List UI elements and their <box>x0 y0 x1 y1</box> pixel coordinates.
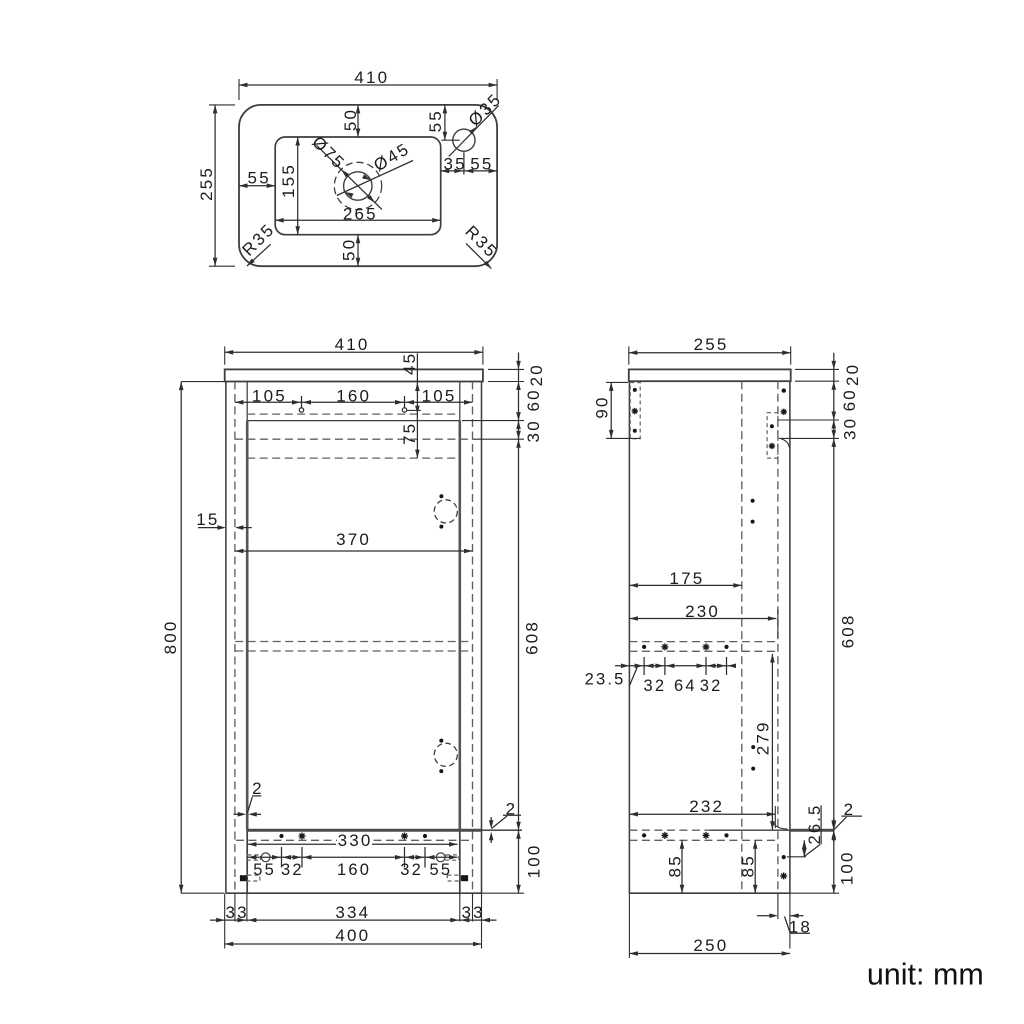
svg-text:410: 410 <box>354 68 389 87</box>
svg-text:279: 279 <box>754 720 773 755</box>
svg-text:60: 60 <box>524 388 543 411</box>
svg-text:55: 55 <box>426 109 445 132</box>
svg-text:unit: mm: unit: mm <box>867 958 984 992</box>
svg-text:160: 160 <box>336 386 371 405</box>
svg-text:105: 105 <box>252 386 287 405</box>
svg-text:23.5: 23.5 <box>585 671 626 689</box>
svg-text:32: 32 <box>281 861 304 879</box>
svg-text:155: 155 <box>279 163 298 198</box>
svg-text:30: 30 <box>840 417 859 440</box>
svg-text:55: 55 <box>253 861 276 879</box>
svg-text:50: 50 <box>340 238 359 261</box>
svg-text:608: 608 <box>838 613 857 648</box>
svg-text:160: 160 <box>337 861 371 879</box>
svg-text:90: 90 <box>592 395 611 418</box>
svg-text:105: 105 <box>422 386 457 405</box>
svg-text:55: 55 <box>248 169 271 188</box>
svg-text:250: 250 <box>693 936 728 955</box>
svg-text:265: 265 <box>343 205 378 224</box>
svg-text:32: 32 <box>644 677 667 695</box>
svg-text:30: 30 <box>524 419 543 442</box>
svg-text:85: 85 <box>739 854 758 877</box>
svg-text:410: 410 <box>335 335 370 354</box>
svg-text:400: 400 <box>335 926 370 945</box>
svg-text:2: 2 <box>252 779 264 798</box>
svg-text:18: 18 <box>789 917 812 936</box>
svg-text:330: 330 <box>338 831 373 850</box>
svg-text:60: 60 <box>840 388 859 411</box>
svg-text:55: 55 <box>470 155 493 174</box>
svg-text:33: 33 <box>225 903 248 922</box>
svg-text:35: 35 <box>443 155 466 174</box>
svg-text:334: 334 <box>335 903 370 922</box>
svg-text:255: 255 <box>694 335 729 354</box>
svg-text:800: 800 <box>161 619 180 654</box>
svg-text:608: 608 <box>522 620 541 655</box>
svg-text:64: 64 <box>674 677 697 695</box>
svg-text:230: 230 <box>685 602 720 621</box>
svg-text:20: 20 <box>843 363 862 386</box>
svg-text:32: 32 <box>400 861 423 879</box>
svg-text:255: 255 <box>197 166 216 201</box>
svg-text:175: 175 <box>669 569 704 588</box>
svg-text:370: 370 <box>336 530 371 549</box>
svg-text:85: 85 <box>666 854 685 877</box>
svg-text:50: 50 <box>341 108 360 131</box>
svg-text:45: 45 <box>400 352 419 375</box>
svg-text:75: 75 <box>400 422 419 445</box>
svg-text:32: 32 <box>700 677 723 695</box>
svg-text:15: 15 <box>196 510 219 529</box>
svg-text:100: 100 <box>837 850 856 885</box>
svg-text:100: 100 <box>525 843 544 878</box>
svg-text:33: 33 <box>461 903 484 922</box>
svg-text:55: 55 <box>430 861 453 879</box>
svg-text:20: 20 <box>527 363 546 386</box>
svg-text:232: 232 <box>689 797 724 816</box>
